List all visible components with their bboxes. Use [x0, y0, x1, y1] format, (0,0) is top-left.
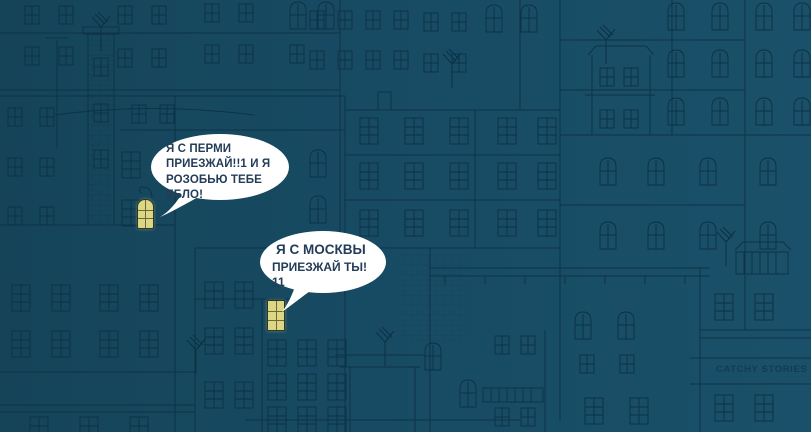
cityscape-background — [0, 0, 811, 432]
watermark-text: CATCHY STORIES — [716, 364, 811, 375]
bubble-line: ПРИЕЗЖАЙ ТЫ! — [272, 260, 384, 275]
bubble-line: 11 — [272, 275, 384, 290]
speech-bubble-moscow: Я С МОСКВЫ ПРИЕЗЖАЙ ТЫ! 11 — [257, 227, 393, 319]
window-mullion — [268, 320, 284, 321]
speech-bubble-moscow-text: Я С МОСКВЫ ПРИЕЗЖАЙ ТЫ! 11 — [272, 241, 384, 290]
bubble-line: Я С ПЕРМИ — [166, 142, 286, 157]
meme-image: Я С ПЕРМИ ПРИЕЗЖАЙ!!1 И Я РОЗОБЬЮ ТЕБЕ Е… — [0, 0, 811, 432]
bubble-line: ЕБЛО! — [166, 188, 286, 203]
speech-bubble-perm-text: Я С ПЕРМИ ПРИЕЗЖАЙ!!1 И Я РОЗОБЬЮ ТЕБЕ Е… — [166, 142, 286, 204]
speech-bubble-perm: Я С ПЕРМИ ПРИЕЗЖАЙ!!1 И Я РОЗОБЬЮ ТЕБЕ Е… — [150, 129, 300, 224]
bubble-line: РОЗОБЬЮ ТЕБЕ — [166, 173, 286, 188]
bubble-line: Я С МОСКВЫ — [276, 241, 384, 258]
window-mullion — [145, 200, 146, 228]
bubble-line: ПРИЕЗЖАЙ!!1 И Я — [166, 157, 286, 172]
